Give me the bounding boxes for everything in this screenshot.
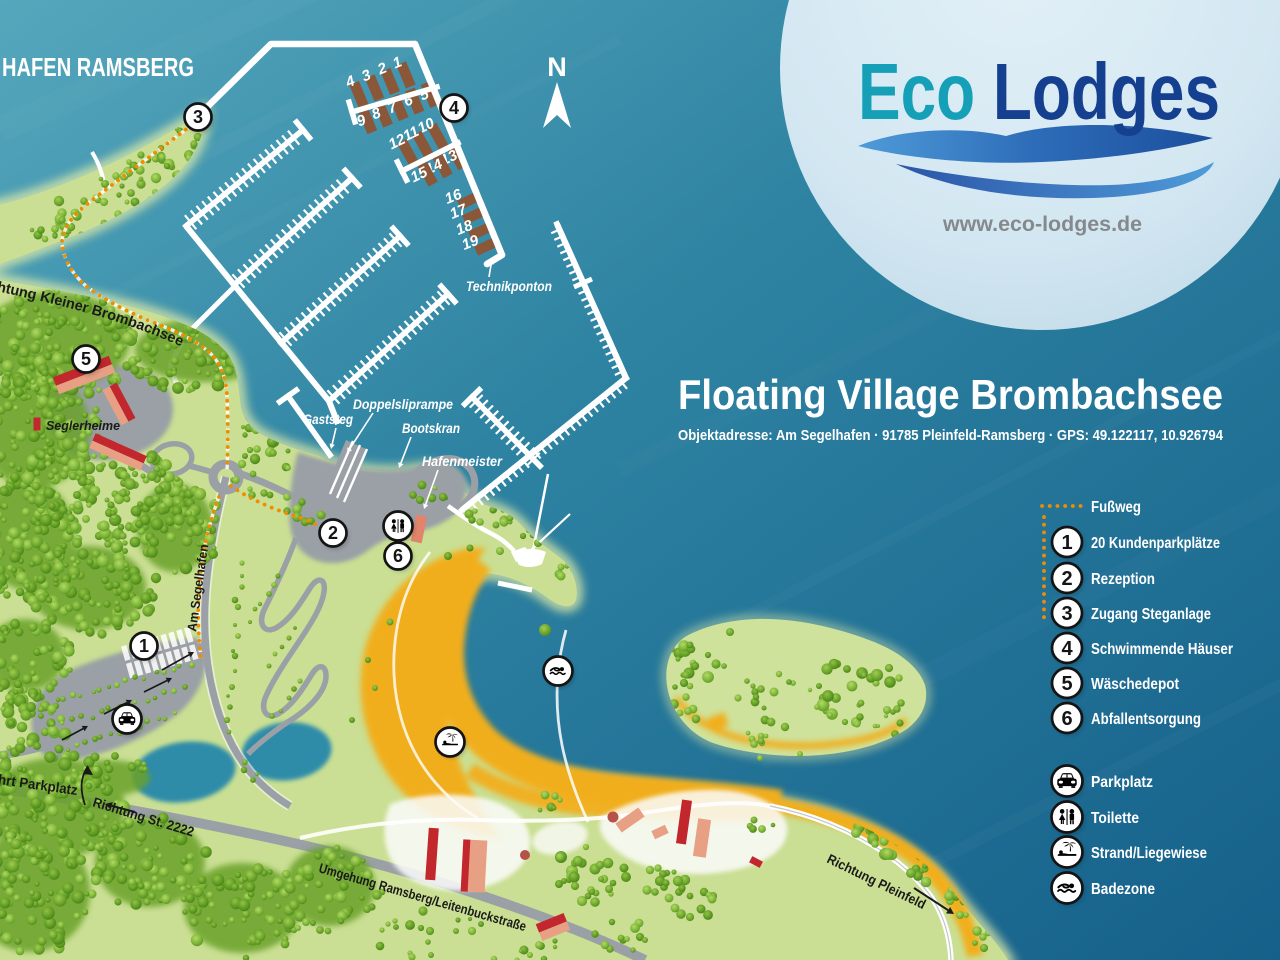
svg-text:6: 6 <box>393 546 403 566</box>
svg-text:Eco Lodges: Eco Lodges <box>858 47 1220 136</box>
svg-text:Badezone: Badezone <box>1091 881 1155 898</box>
svg-text:2: 2 <box>1061 568 1072 590</box>
svg-text:Parkplatz: Parkplatz <box>1091 774 1153 791</box>
svg-text:2: 2 <box>328 523 338 543</box>
svg-text:1: 1 <box>1061 532 1072 554</box>
svg-text:Abfallentsorgung: Abfallentsorgung <box>1091 711 1201 728</box>
svg-text:Objektadresse: Am Segelhafen ·: Objektadresse: Am Segelhafen · 91785 Ple… <box>678 427 1224 444</box>
svg-text:Toilette: Toilette <box>1091 810 1139 827</box>
svg-text:6: 6 <box>1061 708 1072 730</box>
svg-text:www.eco-lodges.de: www.eco-lodges.de <box>942 213 1142 236</box>
svg-text:Seglerheime: Seglerheime <box>46 419 120 433</box>
svg-text:3: 3 <box>193 107 203 127</box>
svg-text:Wäschedepot: Wäschedepot <box>1091 676 1180 693</box>
svg-text:20 Kundenparkplätze: 20 Kundenparkplätze <box>1091 535 1220 552</box>
svg-text:4: 4 <box>449 98 459 118</box>
svg-text:5: 5 <box>1061 673 1072 695</box>
svg-text:Zugang Steganlage: Zugang Steganlage <box>1091 606 1211 623</box>
svg-text:Hafenmeister: Hafenmeister <box>422 454 503 469</box>
svg-text:Gaststeg: Gaststeg <box>303 412 354 427</box>
svg-text:Fußweg: Fußweg <box>1091 499 1141 516</box>
svg-text:1: 1 <box>139 636 149 656</box>
svg-text:4: 4 <box>1061 638 1073 660</box>
svg-text:N: N <box>547 52 567 82</box>
svg-text:3: 3 <box>1061 603 1072 625</box>
svg-text:Floating Village Brombachsee: Floating Village Brombachsee <box>678 371 1223 418</box>
svg-text:Strand/Liegewiese: Strand/Liegewiese <box>1091 845 1207 862</box>
svg-text:Bootskran: Bootskran <box>402 421 460 436</box>
svg-text:Schwimmende Häuser: Schwimmende Häuser <box>1091 641 1233 658</box>
svg-text:5: 5 <box>81 349 91 369</box>
svg-text:HAFEN RAMSBERG: HAFEN RAMSBERG <box>2 52 194 82</box>
svg-text:Doppelsliprampe: Doppelsliprampe <box>353 397 453 412</box>
svg-text:Rezeption: Rezeption <box>1091 571 1155 588</box>
svg-text:Technikponton: Technikponton <box>466 279 552 294</box>
